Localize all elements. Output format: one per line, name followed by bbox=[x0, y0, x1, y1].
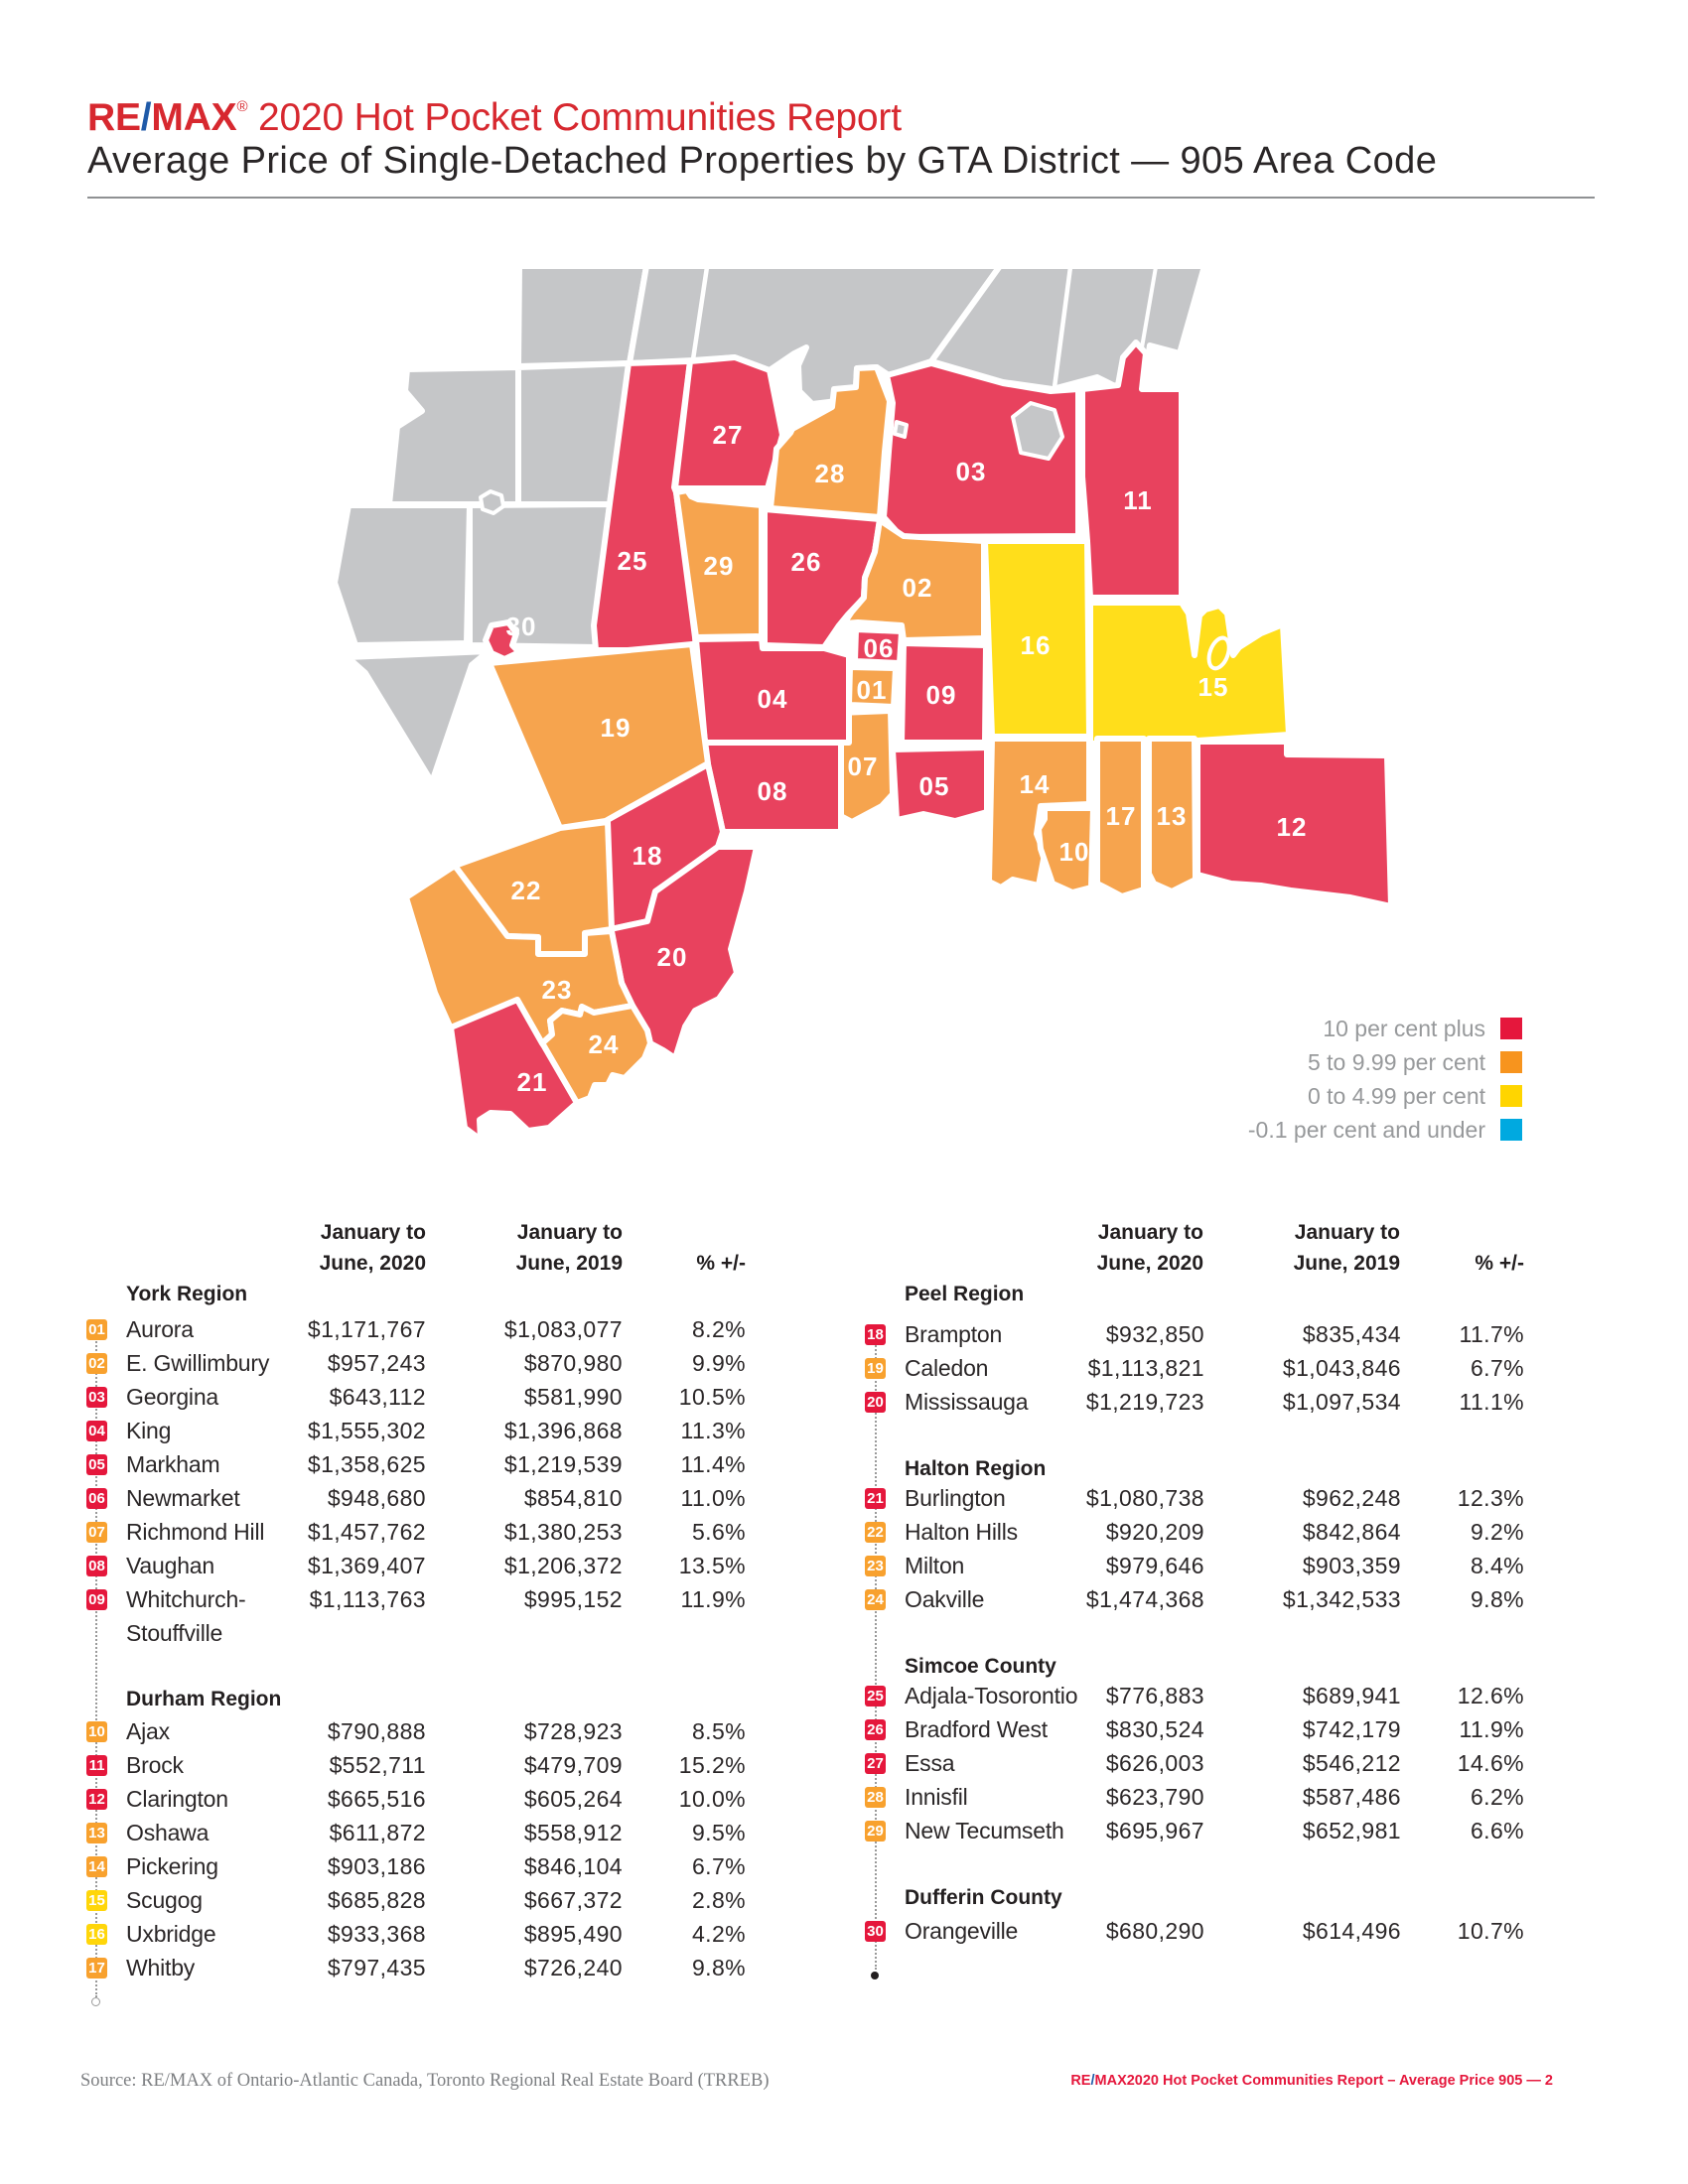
svg-text:04: 04 bbox=[758, 684, 788, 714]
svg-text:08: 08 bbox=[758, 776, 788, 806]
svg-text:26: 26 bbox=[791, 547, 822, 577]
svg-text:06: 06 bbox=[864, 633, 895, 663]
svg-text:23: 23 bbox=[542, 975, 573, 1005]
svg-text:29: 29 bbox=[704, 551, 735, 581]
svg-text:03: 03 bbox=[956, 457, 987, 486]
svg-text:01: 01 bbox=[857, 675, 888, 705]
svg-text:02: 02 bbox=[903, 573, 933, 603]
svg-text:30: 30 bbox=[506, 612, 537, 641]
svg-text:28: 28 bbox=[815, 459, 846, 488]
svg-text:05: 05 bbox=[919, 771, 950, 801]
svg-text:25: 25 bbox=[618, 546, 648, 576]
svg-text:12: 12 bbox=[1277, 812, 1308, 842]
svg-text:27: 27 bbox=[713, 420, 744, 450]
svg-text:24: 24 bbox=[589, 1029, 620, 1059]
svg-text:09: 09 bbox=[926, 680, 957, 710]
svg-text:11: 11 bbox=[1123, 485, 1153, 515]
svg-text:10: 10 bbox=[1059, 837, 1090, 867]
svg-text:07: 07 bbox=[848, 751, 879, 781]
svg-text:20: 20 bbox=[657, 942, 688, 972]
svg-text:15: 15 bbox=[1198, 672, 1229, 702]
svg-text:16: 16 bbox=[1021, 630, 1052, 660]
svg-text:18: 18 bbox=[633, 841, 663, 871]
svg-text:14: 14 bbox=[1020, 769, 1051, 799]
svg-text:17: 17 bbox=[1106, 801, 1137, 831]
svg-text:21: 21 bbox=[517, 1067, 548, 1097]
svg-text:13: 13 bbox=[1157, 801, 1188, 831]
svg-text:19: 19 bbox=[601, 713, 632, 743]
svg-text:22: 22 bbox=[511, 876, 542, 905]
